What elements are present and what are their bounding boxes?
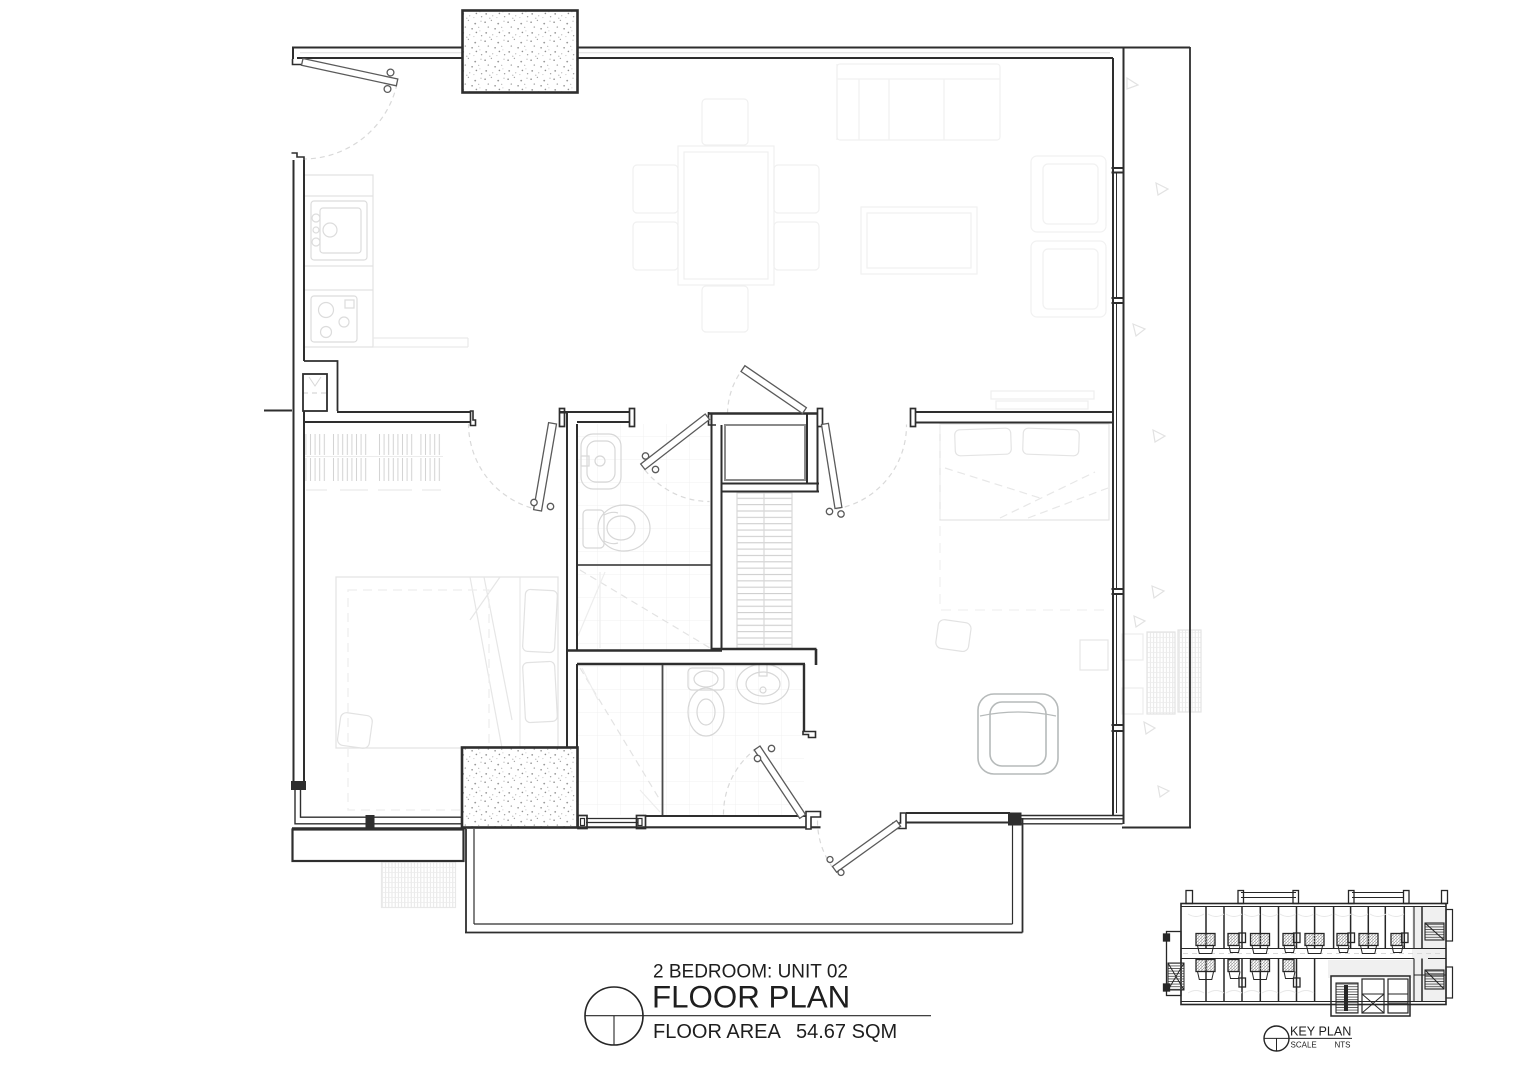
- svg-text:SCALE: SCALE: [1291, 1041, 1317, 1050]
- svg-text:54.67 SQM: 54.67 SQM: [796, 1021, 897, 1043]
- svg-text:KEY PLAN: KEY PLAN: [1290, 1025, 1351, 1039]
- svg-text:FLOOR AREA: FLOOR AREA: [653, 1021, 781, 1043]
- svg-text:FLOOR PLAN: FLOOR PLAN: [652, 980, 850, 1015]
- svg-text:NTS: NTS: [1335, 1041, 1351, 1050]
